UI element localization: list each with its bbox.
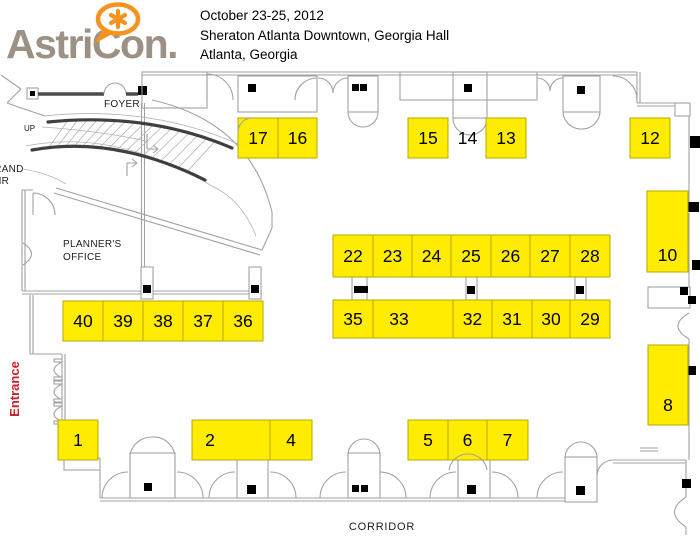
- event-city: Atlanta, Georgia: [200, 45, 449, 65]
- booth-32[interactable]: 32: [453, 300, 492, 338]
- booth-27[interactable]: 27: [530, 235, 570, 277]
- booth-7-number: 7: [503, 430, 513, 450]
- foyer-label: FOYER: [104, 99, 140, 110]
- up-label: UP: [24, 124, 35, 133]
- planners-office-label-line1: PLANNER'S: [63, 239, 122, 250]
- booth-2-area[interactable]: [192, 420, 270, 460]
- booth-23[interactable]: 23: [373, 235, 412, 277]
- booth-25[interactable]: 25: [451, 235, 491, 277]
- booth-17[interactable]: 17: [238, 118, 278, 158]
- booth-33-area[interactable]: [373, 300, 453, 338]
- entrance-label: Entrance: [7, 361, 22, 417]
- booth-27-number: 27: [540, 246, 559, 266]
- booth-24-number: 24: [422, 246, 442, 266]
- booth-14: 14: [458, 128, 478, 148]
- booth-24[interactable]: 24: [412, 235, 451, 277]
- booth-10-number: 10: [658, 245, 678, 265]
- booth-31[interactable]: 31: [492, 300, 532, 338]
- booth-22-number: 22: [343, 246, 362, 266]
- booth-8-number: 8: [663, 395, 673, 415]
- booth-36-number: 36: [233, 311, 252, 331]
- booth-35[interactable]: 35: [333, 300, 373, 338]
- booth-12-number: 12: [640, 128, 659, 148]
- booth-6-number: 6: [463, 430, 473, 450]
- booth-37-number: 37: [193, 311, 212, 331]
- booth-1-number: 1: [73, 430, 83, 450]
- booth-4-number: 4: [286, 430, 296, 450]
- booth-1[interactable]: 1: [58, 420, 98, 460]
- booth-17-number: 17: [248, 128, 267, 148]
- booth-5-number: 5: [423, 430, 433, 450]
- floorplan-drawing: FOYER UP GRAND STAIR PLANNER'S OFFICE En…: [0, 0, 700, 541]
- booth-39[interactable]: 39: [103, 301, 143, 341]
- booth-37[interactable]: 37: [183, 301, 223, 341]
- booth-35-number: 35: [343, 309, 362, 329]
- booth-36[interactable]: 36: [223, 301, 263, 341]
- booth-15[interactable]: 15: [408, 118, 448, 158]
- booth-32-number: 32: [463, 309, 482, 329]
- booth-16[interactable]: 16: [278, 118, 317, 158]
- booth-4[interactable]: 4: [270, 420, 312, 460]
- booth-7[interactable]: 7: [487, 420, 528, 460]
- booth-26-number: 26: [501, 246, 520, 266]
- event-venue: Sheraton Atlanta Downtown, Georgia Hall: [200, 26, 449, 46]
- booth-16-number: 16: [288, 128, 307, 148]
- logo-text: AstriCon.: [6, 21, 177, 67]
- booth-38-number: 38: [153, 311, 172, 331]
- booth-15-number: 15: [418, 128, 437, 148]
- booth-29-number: 29: [580, 309, 599, 329]
- booth-28[interactable]: 28: [570, 235, 610, 277]
- booth-10[interactable]: 10: [647, 191, 688, 272]
- booth-31-number: 31: [502, 309, 521, 329]
- grand-stair-label-line1: GRAND: [0, 164, 24, 175]
- booth-14-number: 14: [458, 128, 478, 148]
- event-info: October 23-25, 2012 Sheraton Atlanta Dow…: [200, 6, 449, 65]
- booth-13-number: 13: [496, 128, 515, 148]
- booth-29[interactable]: 29: [570, 300, 610, 338]
- booth-12[interactable]: 12: [630, 118, 670, 158]
- grand-stair: [23, 100, 272, 255]
- booth-5[interactable]: 5: [408, 420, 448, 460]
- floorplan-page: FOYER UP GRAND STAIR PLANNER'S OFFICE En…: [0, 0, 700, 541]
- booth-33[interactable]: 33: [373, 300, 453, 338]
- booth-23-number: 23: [383, 246, 402, 266]
- booth-2-number: 2: [205, 430, 215, 450]
- booth-25-number: 25: [461, 246, 480, 266]
- booth-39-number: 39: [113, 311, 132, 331]
- astricon-logo: AstriCon.: [0, 0, 210, 70]
- booth-28-number: 28: [580, 246, 599, 266]
- booth-30[interactable]: 30: [532, 300, 570, 338]
- planners-office-label-line2: OFFICE: [63, 252, 101, 263]
- booth-22[interactable]: 22: [333, 235, 373, 277]
- booth-8[interactable]: 8: [648, 345, 688, 425]
- corridor-label: CORRIDOR: [349, 521, 415, 533]
- event-dates: October 23-25, 2012: [200, 6, 449, 26]
- booth-13[interactable]: 13: [486, 118, 526, 158]
- booth-40-number: 40: [73, 311, 93, 331]
- booth-38[interactable]: 38: [143, 301, 183, 341]
- booth-26[interactable]: 26: [491, 235, 530, 277]
- booth-30-number: 30: [541, 309, 561, 329]
- grand-stair-label-line2: STAIR: [0, 176, 9, 187]
- booth-2[interactable]: 2: [192, 420, 270, 460]
- booth-33-number: 33: [389, 309, 408, 329]
- booth-40[interactable]: 40: [63, 301, 103, 341]
